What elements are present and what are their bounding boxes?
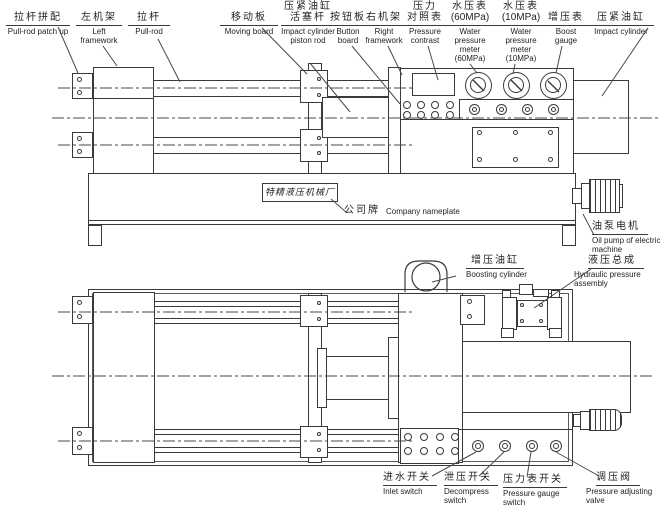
push-button	[436, 447, 444, 455]
panel-divider	[459, 99, 460, 120]
manifold-foot	[549, 328, 562, 338]
callout-boosting-cylinder: 增压油缸 Boosting cylinder	[466, 255, 524, 280]
tie-rod-line	[155, 306, 414, 307]
callout-company-nameplate: 公司牌	[344, 205, 384, 216]
push-button	[403, 101, 411, 109]
pull-rod-patch-tab	[72, 73, 93, 99]
impact-cylinder-body	[462, 341, 631, 413]
left-framework-block	[93, 292, 155, 463]
push-button	[420, 433, 428, 441]
manifold-port	[533, 289, 549, 297]
piston-rod-body	[322, 97, 389, 138]
callout-inlet-switch: 进水开关 Inlet switch	[383, 472, 437, 497]
screw	[548, 130, 553, 135]
manifold-port	[519, 284, 533, 295]
valve-knob-center	[525, 107, 530, 112]
tie-rod-line	[155, 318, 414, 319]
screw	[513, 157, 518, 162]
panel-divider	[458, 429, 573, 430]
valve-knob-center	[553, 443, 559, 449]
gauge-dial	[508, 77, 524, 93]
bolt-hole	[77, 314, 82, 319]
callout-moving-board: 移动板 Moving board	[220, 12, 278, 37]
push-button	[403, 111, 411, 119]
pull-rod-patch-tab	[72, 427, 93, 455]
valve-knob-center	[502, 443, 508, 449]
screw	[520, 319, 524, 323]
push-button	[431, 111, 439, 119]
rod-clamp	[300, 426, 328, 458]
callout-decompress-switch: 泄压开关 Decompress switch	[444, 472, 498, 506]
screw	[467, 314, 472, 319]
tie-rod-line	[153, 153, 388, 154]
piston-rod-line	[326, 399, 390, 400]
callout-pull-rod: 拉杆 Pull-rod	[128, 12, 170, 37]
callout-water-pressure-meter-60: 水压表 (60MPa) Water pressure meter (60MPa)	[444, 1, 496, 64]
push-button	[404, 433, 412, 441]
push-button	[451, 447, 459, 455]
push-button	[436, 433, 444, 441]
left-framework-detail-line	[94, 98, 153, 99]
mount-bracket	[460, 295, 485, 325]
manifold-foot	[501, 328, 514, 338]
callout-pressure-adjusting-valve: 调压阀 Pressure adjusting valve	[596, 472, 640, 506]
screw	[317, 136, 321, 140]
push-button	[420, 447, 428, 455]
hydraulic-press-diagram: 特精液压机械厂	[0, 0, 671, 509]
screw	[477, 130, 482, 135]
gauge-dial	[470, 77, 486, 93]
bolt-hole	[77, 149, 82, 154]
callout-company-nameplate-en: Company nameplate	[386, 208, 496, 217]
pressure-contrast-plate	[412, 73, 455, 96]
push-button	[404, 447, 412, 455]
screw	[539, 303, 543, 307]
piston-rod-line	[326, 356, 390, 357]
pull-rod-patch-tab	[72, 296, 93, 324]
screw	[513, 130, 518, 135]
boosting-cylinder-shape	[405, 261, 447, 292]
callout-hydraulic-assembly: 液压总成 Hydraulic pressure assembly	[588, 255, 644, 289]
oil-pump-motor	[589, 179, 620, 213]
callout-boost-gauge: 增压表 Boost gauge	[543, 12, 589, 46]
callout-pull-rod-patch-up: 拉杆拼配 Pull-rod patch up	[6, 12, 70, 37]
screw	[477, 157, 482, 162]
callout-water-pressure-meter-10: 水压表 (10MPa) Water pressure meter (10MPa)	[495, 1, 547, 64]
callout-right-framework: 右机架 Right framework	[362, 12, 406, 46]
bolt-hole	[77, 445, 82, 450]
framework-edge	[400, 120, 401, 173]
rod-clamp	[300, 295, 328, 327]
tie-rod-line	[155, 434, 414, 435]
push-button	[417, 101, 425, 109]
valve-knob-center	[475, 443, 481, 449]
tie-rod-line	[155, 447, 414, 448]
screw	[317, 448, 321, 452]
screw	[467, 299, 472, 304]
screw	[520, 303, 524, 307]
push-button	[446, 101, 454, 109]
screw	[539, 319, 543, 323]
callout-pressure-contrast: 压力 对照表 Pressure contrast	[403, 1, 447, 46]
bolt-hole	[77, 431, 82, 436]
manifold-block	[502, 297, 517, 330]
callout-impact-cylinder: 压紧油缸 Impact cylinder	[588, 12, 654, 37]
bolt-hole	[77, 300, 82, 305]
callout-oil-pump: 油泵电机 Oil pump of electric machine	[592, 221, 648, 255]
push-button	[431, 101, 439, 109]
screw	[317, 77, 321, 81]
push-button	[446, 111, 454, 119]
impact-cylinder-body	[573, 80, 629, 154]
base-leg	[562, 225, 576, 246]
valve-knob-center	[472, 107, 477, 112]
bolt-hole	[77, 90, 82, 95]
pull-rod-patch-tab	[72, 132, 93, 158]
gauge-dial	[545, 77, 561, 93]
screw	[317, 317, 321, 321]
bolt-hole	[77, 77, 82, 82]
valve-knob-center	[551, 107, 556, 112]
valve-knob-center	[499, 107, 504, 112]
screw	[317, 151, 321, 155]
left-framework-block	[93, 67, 154, 174]
nameplate-text: 特精液压机械厂	[263, 184, 337, 200]
push-button	[451, 433, 459, 441]
screw	[317, 432, 321, 436]
company-nameplate-plate: 特精液压机械厂	[262, 183, 338, 202]
push-button	[417, 111, 425, 119]
screw	[548, 157, 553, 162]
manifold-block	[547, 297, 562, 330]
motor-cap	[619, 184, 623, 208]
screw	[317, 301, 321, 305]
screw	[317, 93, 321, 97]
base-leg	[88, 225, 102, 246]
valve-knob-center	[529, 443, 535, 449]
panel-divider	[459, 99, 573, 100]
bolt-hole	[77, 136, 82, 141]
base-detail-line	[89, 220, 575, 221]
oil-pump-motor	[589, 409, 622, 431]
tie-rod-line	[153, 80, 400, 81]
callout-left-framework: 左机架 Left framework	[76, 12, 122, 46]
callout-pressure-gauge-switch: 压力表开关 Pressure gauge switch	[503, 474, 567, 508]
